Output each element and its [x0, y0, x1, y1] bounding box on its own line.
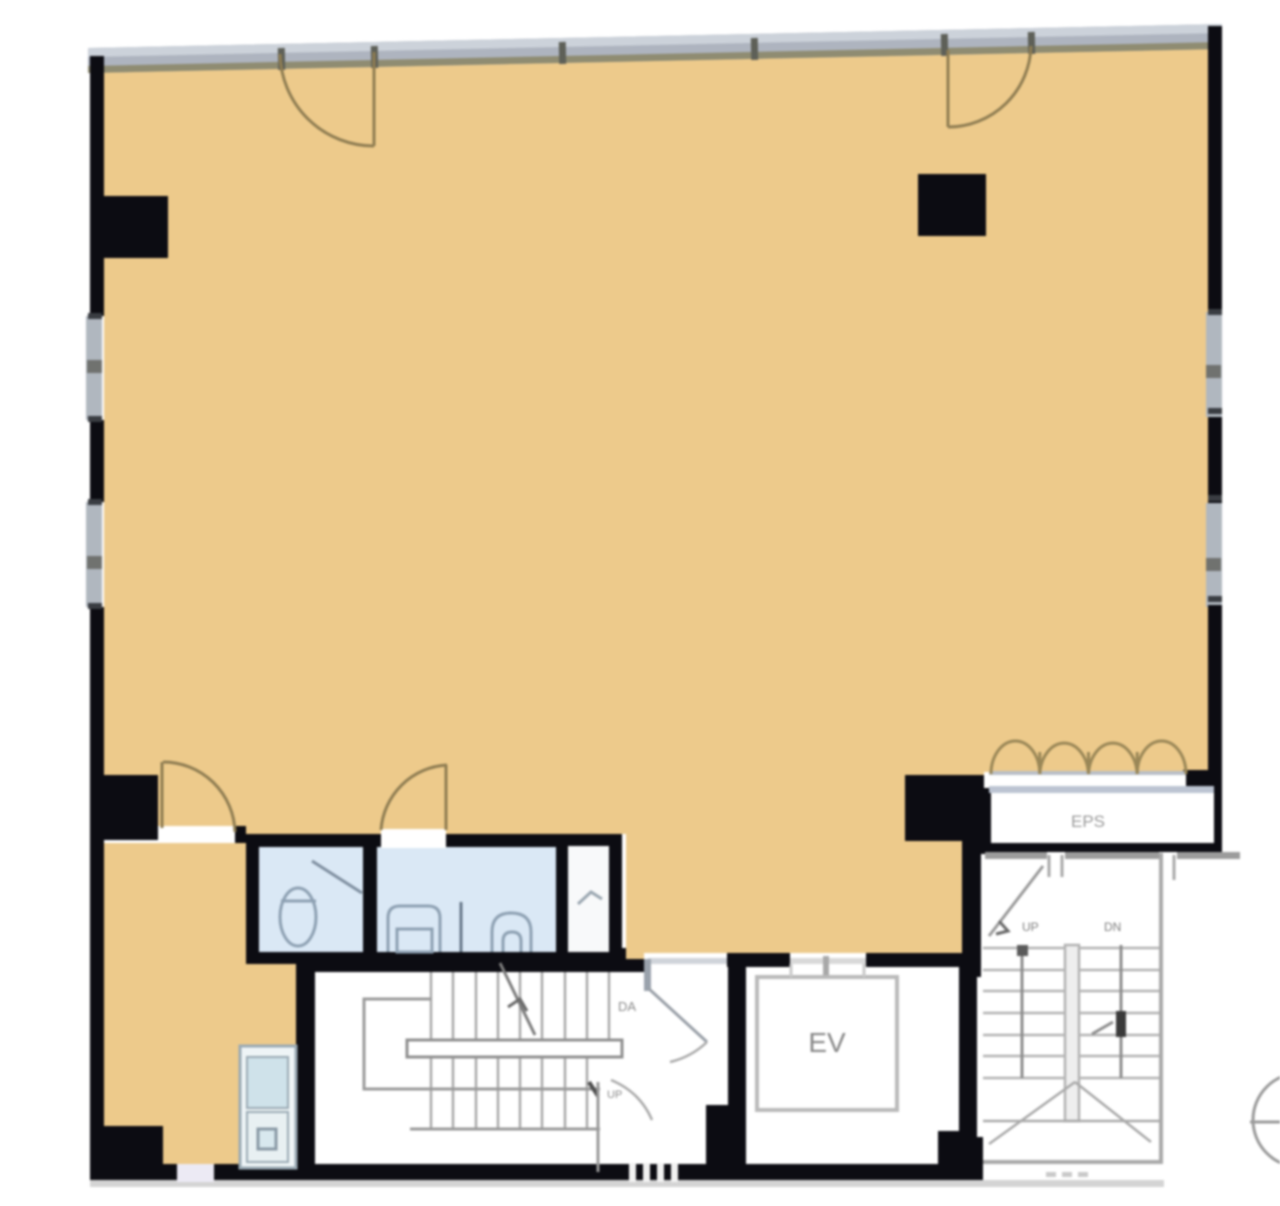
svg-text:DA: DA — [618, 999, 636, 1014]
svg-text:EPS: EPS — [1071, 812, 1105, 831]
svg-text:UP: UP — [607, 1089, 622, 1101]
svg-text:EV: EV — [808, 1027, 846, 1058]
svg-text:UP: UP — [1022, 920, 1039, 934]
svg-text:DN: DN — [1104, 920, 1121, 934]
